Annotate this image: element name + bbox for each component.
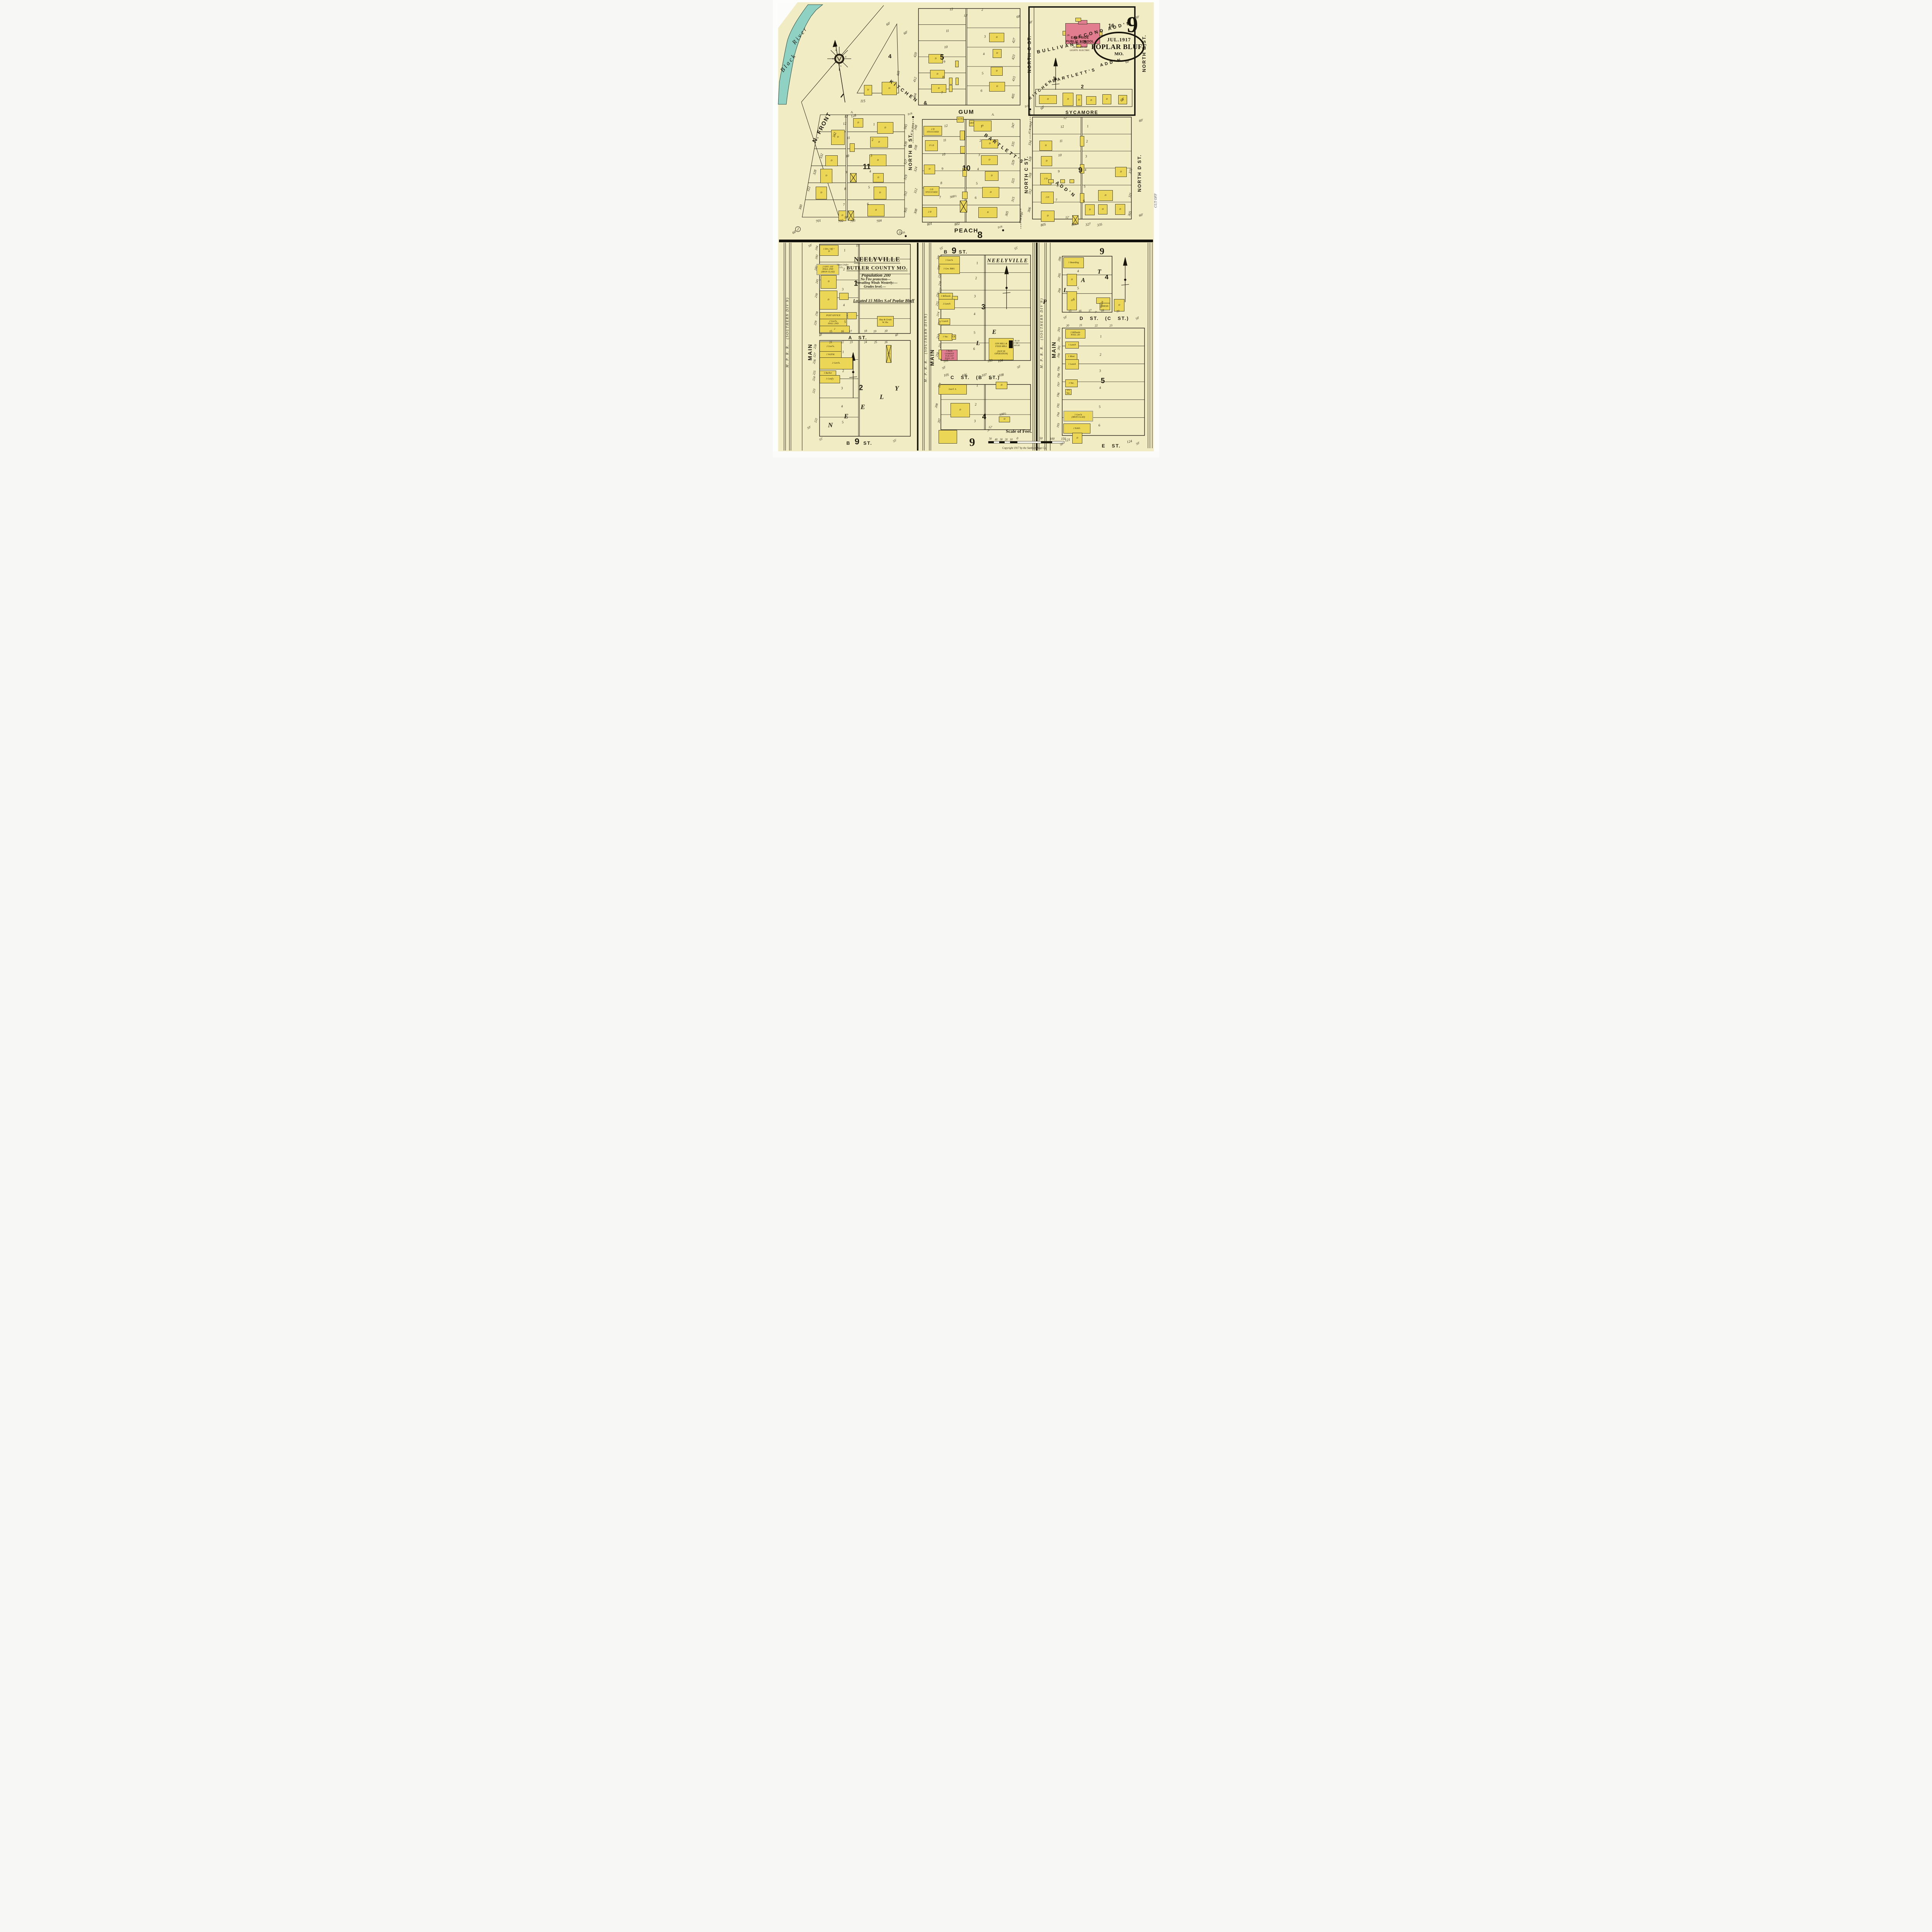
building: D: [874, 187, 886, 199]
map-label: E: [861, 404, 865, 410]
map-label: S: [840, 65, 842, 68]
map-label: NORTH C ST.: [1027, 35, 1032, 73]
map-label: Copyright 1917 by the Sanborn Map Co.: [1002, 447, 1047, 450]
map-label: 20: [1066, 324, 1069, 327]
map-label: 3: [978, 153, 980, 157]
map-label: 6: [1073, 298, 1075, 301]
building: 1 Lunch: [1065, 342, 1079, 349]
building: D: [1067, 274, 1077, 286]
building: D: [1039, 141, 1052, 151]
map-label: PEACH: [954, 228, 979, 234]
map-label: 8: [977, 231, 982, 240]
building: [939, 430, 957, 444]
map-label: 6: [980, 89, 983, 93]
building: 2 D STUCCOED: [923, 126, 942, 136]
map-label: 25: [874, 340, 877, 344]
map-label: 5: [981, 71, 984, 75]
building: D: [1063, 93, 1073, 106]
map-label: 2: [975, 403, 977, 406]
map-label: 8: [942, 75, 944, 79]
map-label: 11: [1059, 139, 1063, 143]
map-label: 5: [973, 331, 976, 335]
map-label: 23: [1109, 324, 1112, 327]
map-label: W: [832, 58, 834, 60]
map-label: NEELYVILLE: [854, 256, 900, 264]
map-label: 3: [842, 287, 844, 291]
building: [850, 143, 855, 152]
title-oval: JUL.1917 POPLAR BLUFF MO.: [1094, 32, 1145, 62]
map-label: 4: [977, 167, 979, 171]
building: D: [820, 291, 837, 310]
building: D: [867, 204, 884, 216]
map-label: LIGHTS: ELECTRIC.: [1070, 49, 1090, 52]
building: 1½ D: [925, 140, 938, 151]
map-label: N: [835, 49, 837, 52]
map-label: PUBLIC SCHOOL: [1066, 40, 1094, 43]
section-divider: [779, 240, 1153, 242]
map-label: E: [844, 413, 848, 420]
map-label: 15: [855, 244, 859, 247]
building: 1 Gen'ls: [939, 256, 960, 265]
map-label: 10: [845, 154, 849, 158]
building: 2 Gen'ls. HALL 2ND: [820, 319, 847, 327]
building: D: [974, 121, 992, 131]
map-label: 6: [975, 196, 977, 200]
building: 2 B.&S.: [1063, 423, 1090, 434]
map-label: L: [880, 394, 884, 400]
building: D: [816, 187, 827, 199]
building: 2 D: [1041, 192, 1054, 204]
map-label: L: [976, 340, 980, 347]
building: [847, 312, 857, 319]
building: 1 Drs. Off.+ D: [820, 245, 838, 256]
building: [1070, 179, 1074, 183]
map-label: Open Under: [837, 264, 849, 266]
map-label: 12': [844, 216, 848, 219]
map-label: 2: [859, 384, 863, 392]
map-label: 34: [1016, 343, 1018, 345]
map-label: 9: [1058, 170, 1060, 173]
map-label: 2: [843, 267, 845, 271]
map-label: 22: [840, 340, 844, 344]
building: D: [820, 169, 832, 183]
building: 1½ Vac.: [1065, 389, 1071, 395]
map-label: 4: [982, 413, 986, 421]
map-label: &: [923, 100, 928, 105]
building: D: [989, 33, 1004, 42]
building: D: [981, 155, 998, 165]
map-label: 3: [974, 419, 976, 423]
map-label: Located 15 Miles S.of Poplar Bluff: [853, 299, 914, 303]
building: [949, 78, 952, 85]
building: [960, 146, 965, 153]
map-label: 7: [941, 91, 943, 95]
building-iron-clad: 2 OFF. 1ST HALL 2ND (IRON CLAD): [816, 264, 839, 275]
title-date: JUL.1917: [1107, 37, 1131, 43]
map-label: 12': [989, 377, 993, 380]
map-label: 16: [1078, 309, 1082, 313]
map-label: 15: [1068, 309, 1071, 313]
building: [839, 293, 849, 300]
building: 1 Vac.: [939, 333, 952, 341]
building: [1063, 31, 1066, 36]
building: 1 Boarding: [1063, 257, 1084, 268]
map-label: 2: [979, 139, 981, 143]
building: D: [1086, 96, 1096, 105]
map-label: 15: [829, 330, 832, 333]
map-label: 12': [988, 426, 992, 429]
building: 2 D: [922, 207, 937, 217]
map-label: NORTH B ST.: [908, 133, 913, 170]
building: [850, 173, 857, 182]
map-label: Population 200: [861, 273, 891, 277]
building: D: [825, 155, 838, 166]
map-label: 11: [943, 138, 947, 142]
building: 1½: [886, 345, 891, 363]
map-label: Grades level.—: [864, 285, 886, 289]
map-label: 5: [1101, 378, 1105, 385]
map-label: 4: [983, 52, 985, 56]
map-label: 5: [844, 320, 846, 324]
map-label: SYCAMORE: [1065, 110, 1098, 115]
map-label: Y: [895, 385, 899, 392]
title-city: POPLAR BLUFF: [1091, 43, 1147, 51]
building: D: [1115, 204, 1125, 215]
map-label: MAIN: [929, 349, 935, 366]
building: D: [1039, 95, 1057, 104]
map-label: 4: [973, 312, 976, 316]
map-label: D ST. (C ST.): [1080, 316, 1129, 321]
map-label: 2: [795, 226, 801, 232]
map-label: ST.: [959, 250, 968, 254]
building: D: [1041, 156, 1052, 166]
map-label: 12': [1065, 216, 1069, 219]
map-label: 9: [855, 437, 859, 446]
building: D: [1102, 94, 1111, 104]
map-label: 40: [995, 439, 998, 441]
map-label: 16: [840, 330, 844, 333]
building: D: [924, 165, 935, 174]
building: 2 D STUCCOED: [923, 186, 939, 196]
map-label: 8: [1056, 184, 1059, 188]
building: D: [853, 118, 863, 128]
map-label: A: [849, 335, 853, 340]
map-label: 10: [962, 165, 970, 172]
map-label: 3: [1099, 369, 1101, 373]
map-label: 5: [1083, 185, 1086, 189]
map-label: 3: [1085, 155, 1087, 158]
building: D: [1098, 190, 1113, 201]
map-label: 2: [1086, 139, 1088, 143]
map-label: 9: [952, 247, 956, 255]
map-label: 115: [861, 100, 866, 103]
map-label: 3: [870, 154, 872, 158]
building: [1080, 136, 1084, 146]
map-label: 11: [946, 29, 949, 33]
map-label: 8: [844, 187, 846, 191]
building: D: [1067, 291, 1077, 310]
map-label: 17: [849, 330, 852, 333]
map-label: 9: [969, 437, 975, 448]
map-label: 5: [868, 185, 870, 189]
map-label: NORTH D ST.: [1137, 154, 1142, 192]
building: AUTO: [957, 117, 964, 122]
building: D: [1041, 211, 1054, 222]
building: D: [821, 275, 837, 289]
map-label: 2: [975, 276, 977, 280]
building: D: [978, 207, 997, 218]
building: 1 Gro. B&S.: [939, 264, 960, 274]
map-label: 4: [1099, 386, 1101, 390]
map-label: 12: [843, 122, 847, 126]
map-label: 7': [987, 430, 990, 433]
building: [962, 192, 968, 199]
map-label: 21: [829, 340, 832, 344]
map-label: 18: [864, 329, 867, 333]
map-label: 2: [842, 369, 844, 373]
map-label: 20: [1005, 439, 1008, 441]
map-label: 5: [1099, 405, 1101, 409]
map-label: 22: [1094, 324, 1098, 327]
map-label: MAIN: [807, 344, 813, 361]
map-label: M. P. R. R. (SOUTHERN DIV'N): [786, 297, 789, 368]
map-label: 5: [842, 420, 844, 424]
map-label: ST.: [863, 441, 872, 446]
map-label: 12: [949, 7, 953, 11]
map-label: 6: [1098, 423, 1100, 427]
building: D: [951, 403, 970, 417]
map-label: T: [1097, 269, 1101, 275]
map-label: 10: [944, 45, 948, 49]
building: [949, 85, 952, 92]
map-label: 7: [843, 203, 845, 207]
building: D: [931, 84, 946, 93]
building: [1048, 179, 1054, 183]
map-label: 12': [1063, 117, 1067, 120]
map-label: P: [1043, 299, 1047, 305]
map-label: MAIN: [1051, 341, 1056, 358]
map-label: Scale of Feet.: [1006, 429, 1032, 434]
building: Hay & Grain W. Ho.: [877, 316, 894, 327]
building: D: [991, 67, 1003, 76]
map-label: 9: [845, 170, 847, 174]
map-label: ST.: [858, 335, 867, 340]
building: D: [1098, 204, 1107, 214]
map-label: Prevailing Winds Westerly:—: [855, 281, 897, 285]
map-label: 21: [1079, 323, 1082, 327]
map-label: 10: [942, 153, 946, 156]
map-label: 20: [884, 329, 888, 333]
map-label: L: [1063, 287, 1067, 294]
map-label: M. P. R. R. (SOUTHERN DIV'N): [1040, 298, 1044, 369]
map-label: BUTLER COUNTY MO.: [847, 265, 908, 271]
map-label: NEELYVILLE: [987, 259, 1029, 264]
map-label: E: [845, 56, 847, 58]
map-label: B: [847, 441, 851, 446]
map-label: CUT OFF: [1154, 193, 1158, 207]
map-label: 6: [867, 202, 869, 206]
map-label: 7: [939, 196, 941, 199]
map-label: A: [1081, 277, 1085, 284]
building: 2 Gen'ls.: [820, 357, 853, 369]
building: D: [1085, 204, 1095, 215]
map-label: 19: [873, 330, 876, 333]
building: D: [873, 173, 884, 182]
map-label: M. P. R. R. (SOUTHERN DIVN): [924, 313, 928, 383]
map-label: 4: [841, 405, 843, 408]
map-label: 8: [940, 181, 942, 185]
building: [1009, 340, 1013, 348]
building: [1075, 18, 1081, 22]
map-label: 2: [1081, 84, 1083, 89]
map-label: 9: [943, 60, 946, 64]
map-label: 10: [1010, 439, 1013, 441]
building: Gen'l. S.: [939, 384, 967, 395]
building: D: [996, 382, 1007, 389]
building: 1 Meat: [1065, 354, 1077, 360]
map-label: 2: [897, 230, 902, 235]
map-label: 10: [1058, 153, 1062, 157]
map-label: A.: [992, 113, 995, 116]
map-label: 7': [1095, 311, 1097, 314]
map-label: 4: [1105, 274, 1108, 281]
map-label: E: [992, 329, 997, 335]
map-label: HEAT: STEAM.: [1073, 46, 1087, 49]
building: D: [985, 171, 998, 181]
map-label: 9: [1100, 247, 1104, 256]
map-label: 50: [1039, 437, 1043, 440]
map-label: 19: [1116, 310, 1119, 313]
map-label: 12: [944, 124, 948, 128]
scale-bar: [988, 441, 1064, 443]
map-label: 18: [1100, 309, 1104, 312]
map-label: 6: [1083, 199, 1085, 203]
map-label: 7: [1055, 198, 1058, 202]
map-label: 24: [864, 340, 867, 344]
map-label: 12': [964, 14, 968, 17]
map-label: N: [828, 422, 833, 429]
map-label: 23: [849, 340, 853, 344]
building: D: [1115, 167, 1127, 177]
map-label: 50: [989, 438, 992, 440]
building-iron-clad: 1 Gen'ls (IRON CLAD): [1063, 411, 1093, 422]
building: S.R.: [952, 335, 956, 340]
building: D: [877, 122, 893, 134]
building: D: [993, 49, 1002, 58]
building: [956, 78, 959, 85]
map-label: 12: [1060, 125, 1064, 129]
map-label: 3: [974, 294, 976, 298]
map-label: 3: [841, 386, 843, 390]
map-label: 12': [844, 115, 848, 118]
map-label: 2: [871, 138, 874, 142]
map-label: 4: [843, 303, 845, 307]
building: 1 Conf'y: [820, 375, 840, 383]
map-label: 30: [1000, 439, 1003, 441]
map-label: 9: [1078, 167, 1083, 174]
map-label: 5: [976, 182, 978, 185]
building: 2 Billiards HALL 2D: [1065, 329, 1085, 338]
map-label: 4: [869, 170, 871, 173]
map-label: 9: [941, 167, 944, 171]
building: D: [1072, 433, 1082, 444]
map-label: 4: [1077, 269, 1079, 273]
map-label: 2: [1099, 353, 1102, 357]
building: 1 Vac.: [1065, 379, 1078, 387]
building: [960, 201, 967, 213]
scan-bottom-edge: [773, 451, 1159, 457]
map-label: 5: [1077, 286, 1079, 290]
sanborn-map-sheet: 9 JUL.1917 POPLAR BLUFF MO. DDDDDDDDDDDD…: [773, 0, 1159, 457]
map-label: 26: [884, 340, 888, 344]
map-label: E ST.: [1102, 444, 1121, 448]
map-label: 11: [847, 136, 850, 140]
map-label: ABV.RF.: [1014, 345, 1020, 347]
map-label: 6: [973, 347, 975, 351]
map-label: B: [944, 250, 948, 254]
building: D: [864, 85, 872, 95]
map-label: GUM: [959, 109, 975, 115]
map-label: 1: [854, 280, 858, 287]
building: D: [982, 187, 999, 198]
map-label: 0: [1017, 437, 1018, 440]
map-label: 2: [981, 8, 983, 12]
map-label: 17: [1088, 309, 1092, 312]
building: [955, 61, 959, 67]
building: 2 Lunch: [939, 299, 955, 310]
building: [960, 131, 965, 140]
map-label: 16: [1108, 23, 1114, 28]
building: D: [999, 417, 1010, 422]
map-label: IR.CH: [1015, 340, 1020, 342]
building: D: [989, 82, 1005, 92]
map-label: 4: [888, 54, 891, 60]
building: 1 Lunch: [1065, 359, 1079, 369]
building: 2: [820, 326, 850, 333]
map-label: 2B.: [1067, 34, 1070, 37]
building: D: [1076, 95, 1082, 106]
map-label: 3: [981, 304, 986, 311]
map-label: NORTH D ST.: [1142, 34, 1146, 72]
map-label: 3: [984, 35, 986, 39]
map-label: 2B.: [1087, 35, 1090, 37]
map-label: 4: [1084, 168, 1087, 172]
map-label: 100: [1050, 437, 1054, 440]
title-state: MO.: [1114, 51, 1124, 57]
